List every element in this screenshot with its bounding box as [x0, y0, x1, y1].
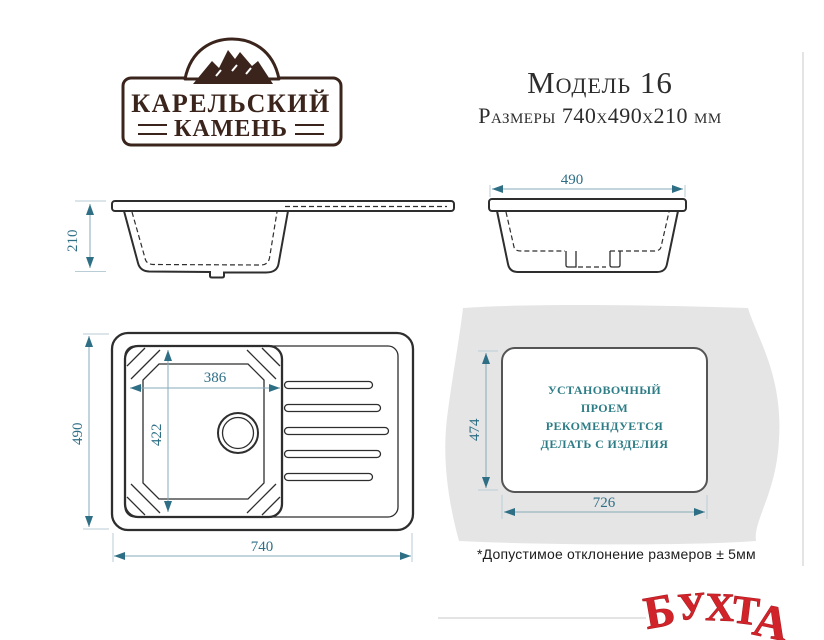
watermark-letter: Б [640, 583, 679, 639]
overall-dimensions: Размеры 740х490х210 мм [440, 103, 760, 129]
dim-cutout-depth: 474 [467, 418, 483, 441]
tolerance-footnote: *Допустимое отклонение размеров ± 5мм [477, 546, 777, 562]
header: Модель 16 Размеры 740х490х210 мм [440, 66, 760, 129]
dim-front-width: 490 [561, 172, 584, 188]
dim-cutout-width: 726 [593, 495, 616, 511]
model-title: Модель 16 [440, 66, 760, 100]
dim-top-length: 740 [251, 539, 274, 555]
brand-logo: КАРЕЛЬСКИЙ КАМЕНЬ [113, 36, 349, 150]
brand-name-line2: КАМЕНЬ [174, 116, 288, 143]
drain-hole [218, 413, 258, 453]
front-view-drawing: 490 [489, 172, 686, 272]
cutout-note-line: ДЕЛАТЬ С ИЗДЕЛИЯ [502, 435, 707, 453]
brand-name-line1: КАРЕЛЬСКИЙ [113, 89, 349, 119]
cutout-note-line: РЕКОМЕНДУЕТСЯ [502, 417, 707, 435]
cutout-note: УСТАНОВОЧНЫЙ ПРОЕМ РЕКОМЕНДУЕТСЯ ДЕЛАТЬ … [502, 381, 707, 453]
ornament-line-left [138, 124, 167, 135]
cutout-note-line: УСТАНОВОЧНЫЙ [502, 381, 707, 399]
drainboard-grooves [285, 382, 389, 481]
store-watermark: Б У Х Т А [640, 583, 794, 640]
side-view-drawing: 210 [65, 201, 454, 278]
dim-top-width: 490 [70, 423, 86, 446]
dim-bowl-depth: 422 [149, 424, 165, 447]
dim-side-height: 210 [65, 230, 81, 253]
cutout-note-line: ПРОЕМ [502, 399, 707, 417]
product-spec-image: 210 490 [0, 0, 824, 640]
ornament-line-right [295, 124, 324, 135]
watermark-letter: У [676, 585, 708, 629]
top-view-drawing: 386 422 490 740 [70, 333, 413, 562]
dim-bowl-width: 386 [204, 370, 227, 386]
brand-name-row2: КАМЕНЬ [113, 116, 349, 143]
